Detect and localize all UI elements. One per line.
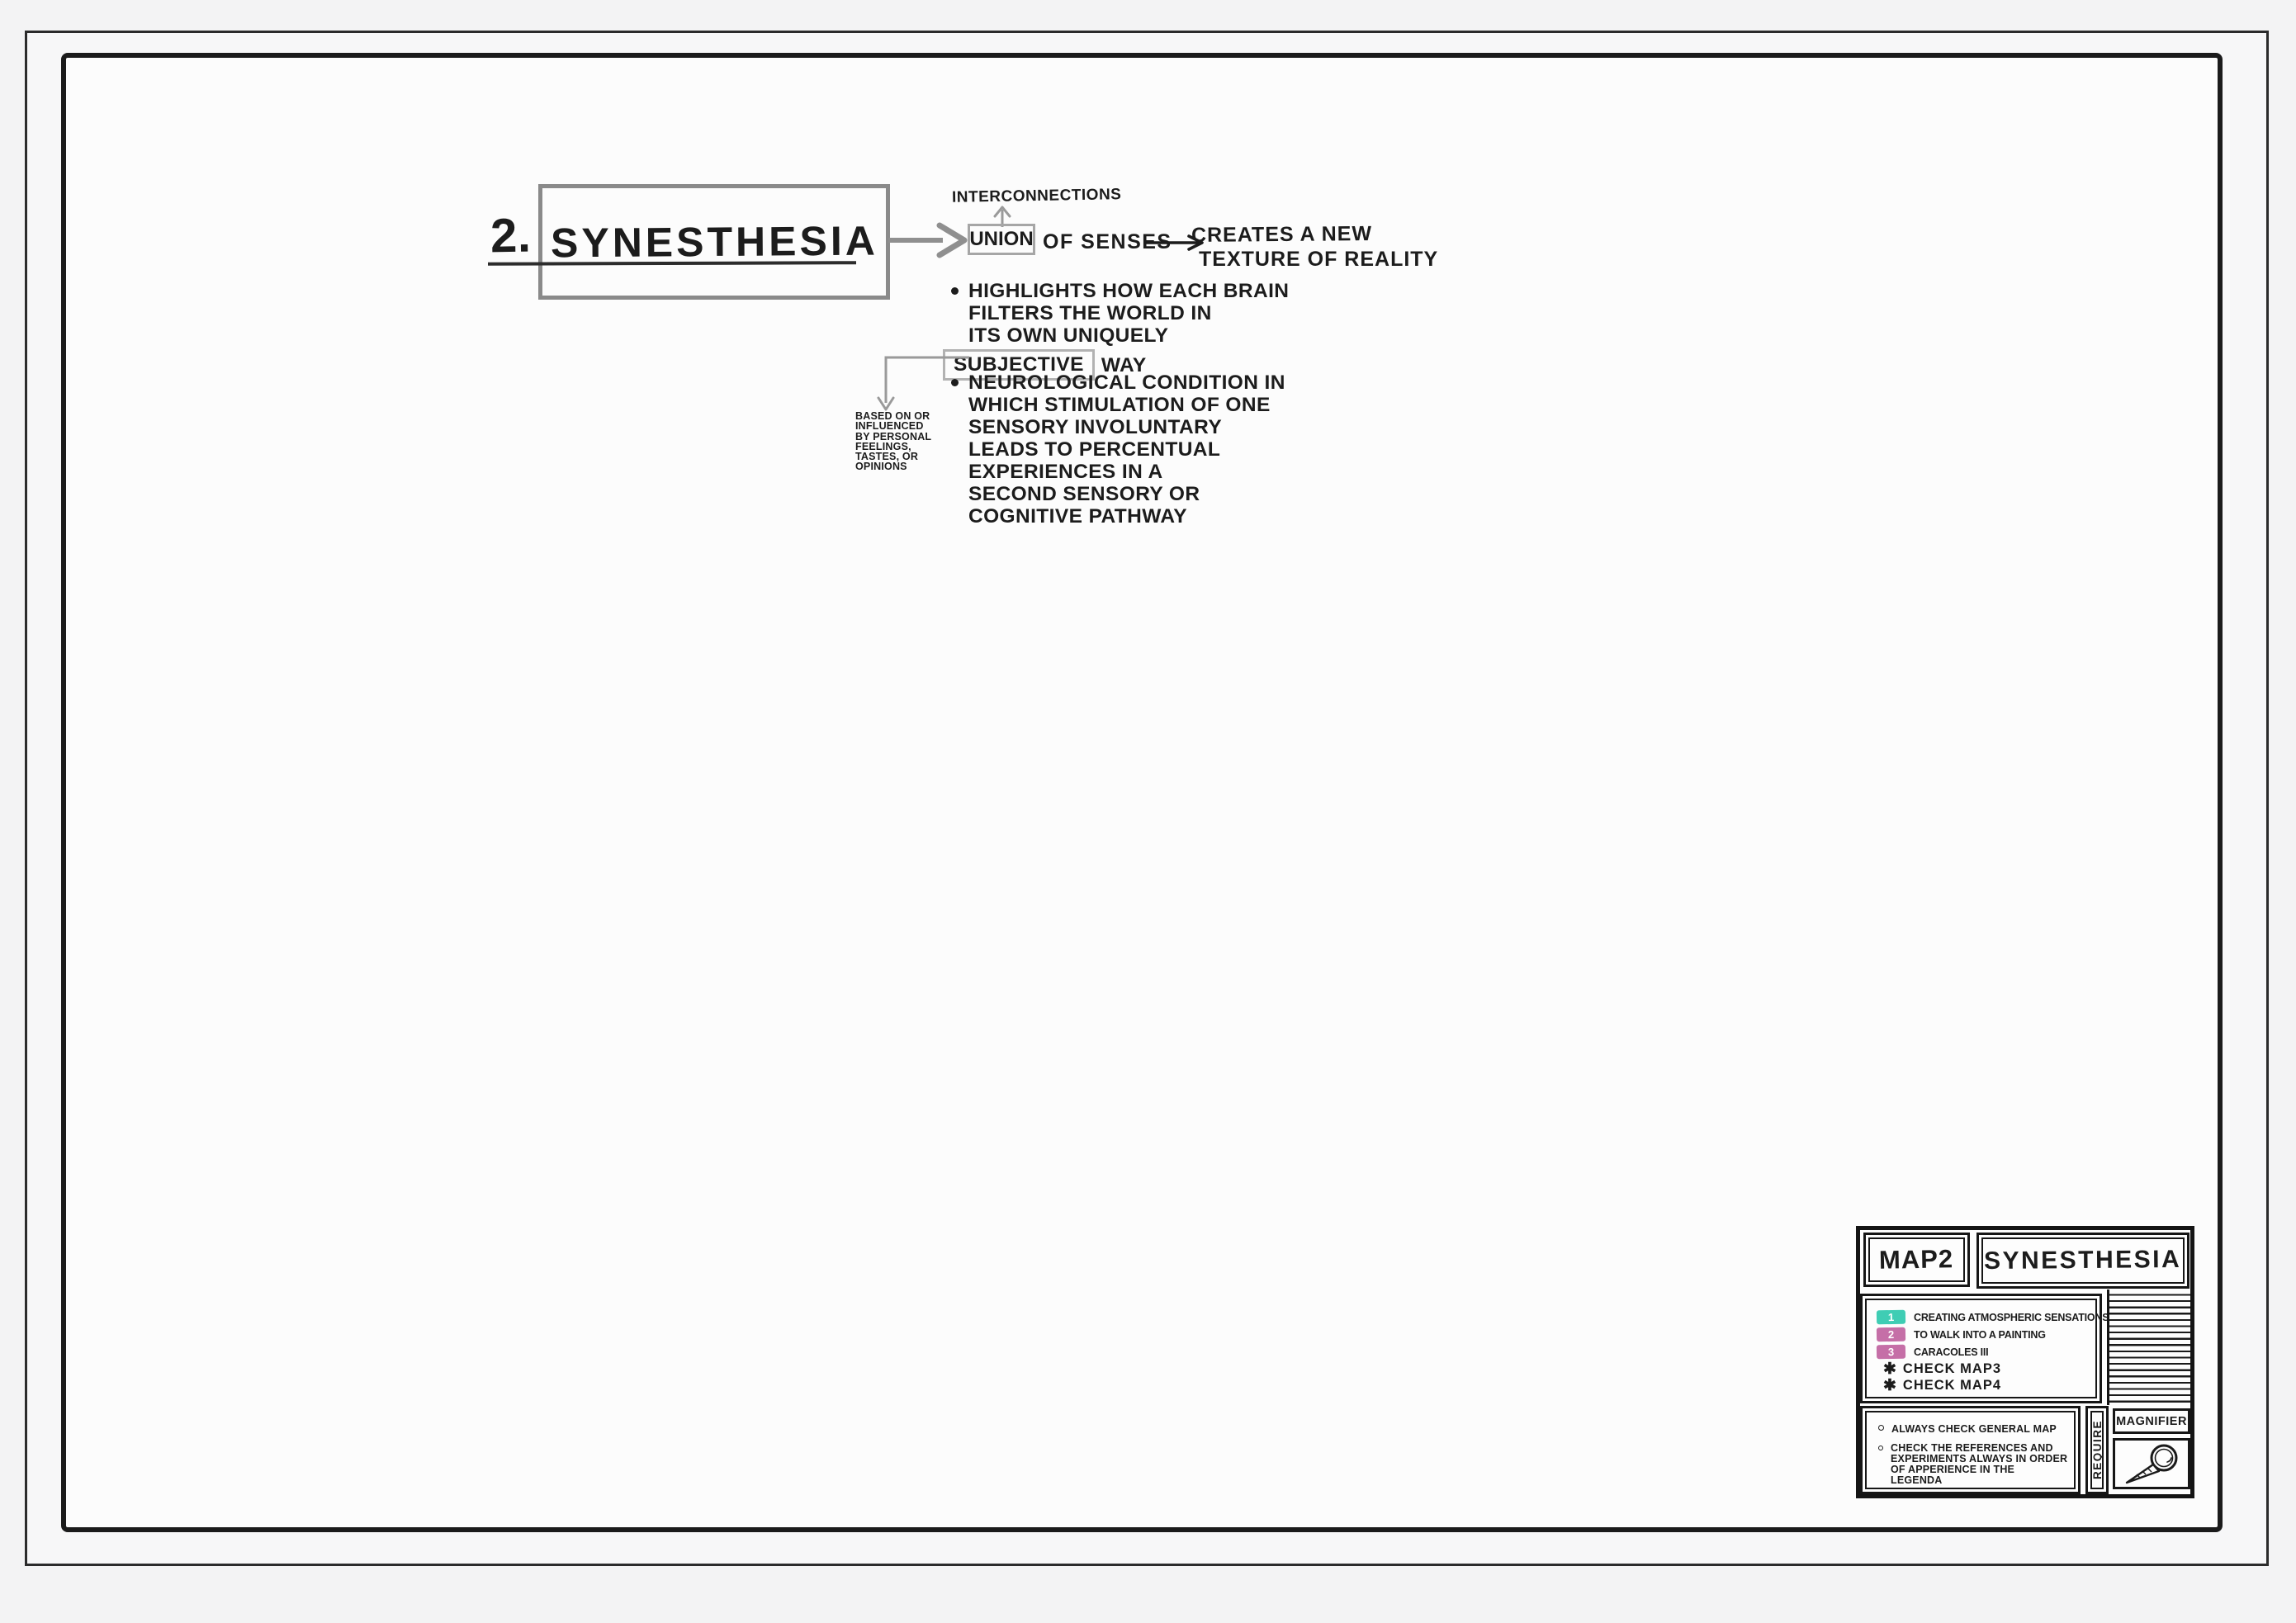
- bullet-highlights: HIGHLIGHTS HOW EACH BRAIN FILTERS THE WO…: [951, 280, 1289, 381]
- legend-item-label: CARACOLES III: [1914, 1346, 1988, 1358]
- magnifier-icon: [2117, 1441, 2186, 1486]
- note2-line3: OF APPERIENCE IN THE LEGENDA: [1891, 1464, 2014, 1486]
- subjective-note-line: INFLUENCED: [855, 421, 931, 431]
- magnifier-label-box: MAGNIFIER: [2113, 1408, 2190, 1434]
- legend-panel[interactable]: MAP2 SYNESTHESIA 1 CREATING ATMOSPHERIC …: [1856, 1226, 2194, 1498]
- legend-badge-3: 3: [1877, 1345, 1905, 1360]
- legend-check-map3: ✱ CHECK MAP3: [1883, 1360, 2001, 1377]
- union-word: UNION: [969, 228, 1033, 251]
- connector-arrow-right-icon: [888, 221, 968, 261]
- creates-line2: TEXTURE OF REALITY: [1199, 248, 1438, 272]
- bullet2-line4: LEADS TO PERCENTUAL: [968, 438, 1285, 461]
- bullet2-line5: EXPERIENCES IN A: [968, 461, 1285, 483]
- legend-item: 2 TO WALK INTO A PAINTING: [1877, 1326, 2046, 1343]
- legend-map-number-box: MAP2: [1863, 1233, 1970, 1287]
- note2-line2: EXPERIMENTS ALWAYS IN ORDER: [1891, 1453, 2067, 1464]
- legend-map-title: SYNESTHESIA: [1984, 1246, 2182, 1275]
- note-text: CHECK THE REFERENCES AND EXPERIMENTS ALW…: [1891, 1443, 2069, 1486]
- topic-title: SYNESTHESIA: [550, 217, 878, 267]
- legend-map-title-box: SYNESTHESIA: [1976, 1233, 2189, 1289]
- legend-item: 1 CREATING ATMOSPHERIC SENSATIONS: [1877, 1308, 2109, 1326]
- circle-bullet-icon: [1878, 1446, 1883, 1450]
- bullet2-line6: SECOND SENSORY OR: [968, 483, 1285, 505]
- topic-box[interactable]: SYNESTHESIA: [538, 184, 890, 300]
- bullet-neurological: NEUROLOGICAL CONDITION IN WHICH STIMULAT…: [951, 371, 1285, 528]
- bullet1-line2: FILTERS THE WORLD IN: [968, 302, 1289, 324]
- bullet1-line1: HIGHLIGHTS HOW EACH BRAIN: [968, 280, 1289, 302]
- magnifier-label: MAGNIFIER: [2116, 1415, 2187, 1428]
- bullet2-line2: WHICH STIMULATION OF ONE: [968, 394, 1285, 416]
- legend-hatch-area: [2107, 1289, 2190, 1405]
- whiteboard-page: 2. SYNESTHESIA INTERCONNECTIONS UNION OF…: [0, 0, 2296, 1623]
- require-label: REQUIRE: [2091, 1420, 2104, 1479]
- legend-item-label: TO WALK INTO A PAINTING: [1914, 1329, 2046, 1341]
- bullet1-line3: ITS OWN UNIQUELY: [968, 324, 1289, 347]
- bullet2-line3: SENSORY INVOLUNTARY: [968, 416, 1285, 438]
- creates-line1: CREATES A NEW: [1191, 222, 1372, 248]
- legend-item-label: CREATING ATMOSPHERIC SENSATIONS: [1914, 1312, 2109, 1323]
- bullet-dot-icon: [951, 287, 959, 295]
- note-text: ALWAYS CHECK GENERAL MAP: [1891, 1424, 2057, 1435]
- legend-badge-2: 2: [1877, 1327, 1905, 1342]
- legend-badge-1: 1: [1877, 1310, 1905, 1325]
- legend-map-number: MAP2: [1879, 1244, 1954, 1275]
- note2-line1: CHECK THE REFERENCES AND: [1891, 1442, 2053, 1454]
- legend-notes-box: ALWAYS CHECK GENERAL MAP CHECK THE REFER…: [1860, 1406, 2081, 1494]
- bullet2-line1: NEUROLOGICAL CONDITION IN: [968, 371, 1285, 394]
- legend-note-1: ALWAYS CHECK GENERAL MAP: [1877, 1424, 2057, 1435]
- union-box[interactable]: UNION: [968, 224, 1035, 255]
- bullet2-line7: COGNITIVE PATHWAY: [968, 505, 1285, 528]
- legend-check-map4: ✱ CHECK MAP4: [1883, 1377, 2001, 1394]
- check-label: CHECK MAP4: [1903, 1378, 2001, 1394]
- legend-note-2: CHECK THE REFERENCES AND EXPERIMENTS ALW…: [1877, 1443, 2069, 1486]
- circle-bullet-icon: [1878, 1425, 1884, 1431]
- subjective-note-line: OPINIONS: [855, 461, 931, 471]
- legend-item: 3 CARACOLES III: [1877, 1343, 1988, 1360]
- topic-number: 2.: [490, 208, 532, 264]
- magnifier-button[interactable]: [2113, 1438, 2190, 1489]
- interconnections-label: INTERCONNECTIONS: [952, 186, 1122, 207]
- subjective-note: BASED ON OR INFLUENCED BY PERSONAL FEELI…: [855, 411, 931, 472]
- asterisk-icon: ✱: [1883, 1376, 1897, 1395]
- legend-items-box: 1 CREATING ATMOSPHERIC SENSATIONS 2 TO W…: [1860, 1294, 2102, 1403]
- legend-require-box: REQUIRE: [2085, 1406, 2109, 1494]
- bullet-dot-icon: [951, 379, 959, 386]
- check-label: CHECK MAP3: [1903, 1361, 2001, 1377]
